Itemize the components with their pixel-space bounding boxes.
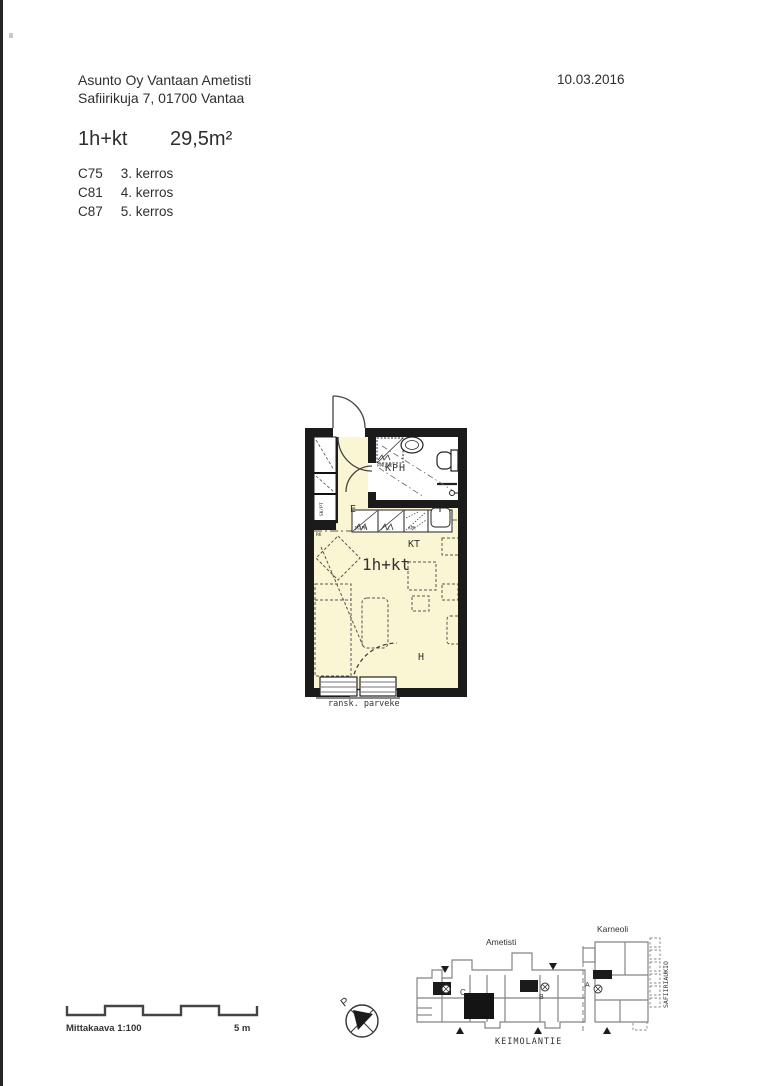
company-name: Asunto Oy Vantaan Ametisti [78, 71, 251, 89]
document-page: Asunto Oy Vantaan Ametisti Safiirikuja 7… [0, 0, 768, 1086]
document-date: 10.03.2016 [557, 72, 625, 87]
room-label-bathroom: KPH [385, 463, 406, 474]
north-letter: P [339, 995, 352, 1009]
building-label-ametisti: Ametisti [486, 937, 516, 947]
scale-bar-line [67, 1006, 257, 1015]
building-label-karneoli: Karneoli [597, 924, 628, 934]
floor-plan: PPK/KK [288, 385, 488, 720]
unit-row: C87 5. kerros [78, 204, 173, 219]
dishwasher-label: APK [408, 526, 416, 531]
scale-end-label: 5 m [234, 1023, 250, 1034]
room-label-hall: E [350, 504, 356, 515]
scale-label: Mittakaava 1:100 [66, 1023, 142, 1034]
sink-symbol [401, 437, 423, 453]
stair-label-c: C [460, 988, 466, 997]
room-label-type: 1h+kt [362, 555, 410, 574]
closet-label: SK/PT [319, 502, 325, 516]
unit-row: C75 3. kerros [78, 166, 173, 181]
street-label-safiiriaukio: SAFIIRIAUKIO [662, 961, 670, 1008]
scale-bar: Mittakaava 1:100 5 m [58, 998, 268, 1040]
balcony-row [633, 938, 660, 1030]
unit-code: C75 [78, 166, 117, 181]
company-address: Safiirikuja 7, 01700 Vantaa [78, 89, 244, 107]
unit-floor: 3. kerros [121, 166, 174, 181]
room-label-kitchen: KT [408, 539, 420, 550]
unit-floor: 5. kerros [121, 204, 174, 219]
entrance-door-arc [333, 396, 365, 428]
balcony-label: ransk. parveke [328, 699, 400, 709]
building-karneoli-outline [583, 942, 648, 1022]
fridge-label: JK/PK [354, 526, 367, 531]
room-label-room: H [418, 652, 424, 663]
highlighted-unit [464, 993, 494, 1019]
unit-code: C87 [78, 204, 117, 219]
stair-label-a: A [585, 982, 590, 989]
unit-row: C81 4. kerros [78, 185, 173, 200]
street-label-keimolantie: KEIMOLANTIE [495, 1037, 562, 1047]
scan-edge-artifact [0, 0, 3, 1086]
stair-label-b: B [539, 994, 544, 1001]
apartment-area: 29,5m² [170, 128, 232, 151]
unit-floor: 4. kerros [121, 185, 174, 200]
toilet-symbol [437, 452, 452, 469]
north-compass-icon: P [330, 990, 394, 1054]
unit-code: C81 [78, 185, 117, 200]
apartment-type: 1h+kt [78, 128, 127, 151]
electric-cabinet-label: RK [316, 532, 322, 538]
site-plan: Ametisti Karneoli C B A KEIMOLANTIE SAFI… [405, 915, 680, 1065]
scan-speck-artifact [9, 33, 13, 38]
